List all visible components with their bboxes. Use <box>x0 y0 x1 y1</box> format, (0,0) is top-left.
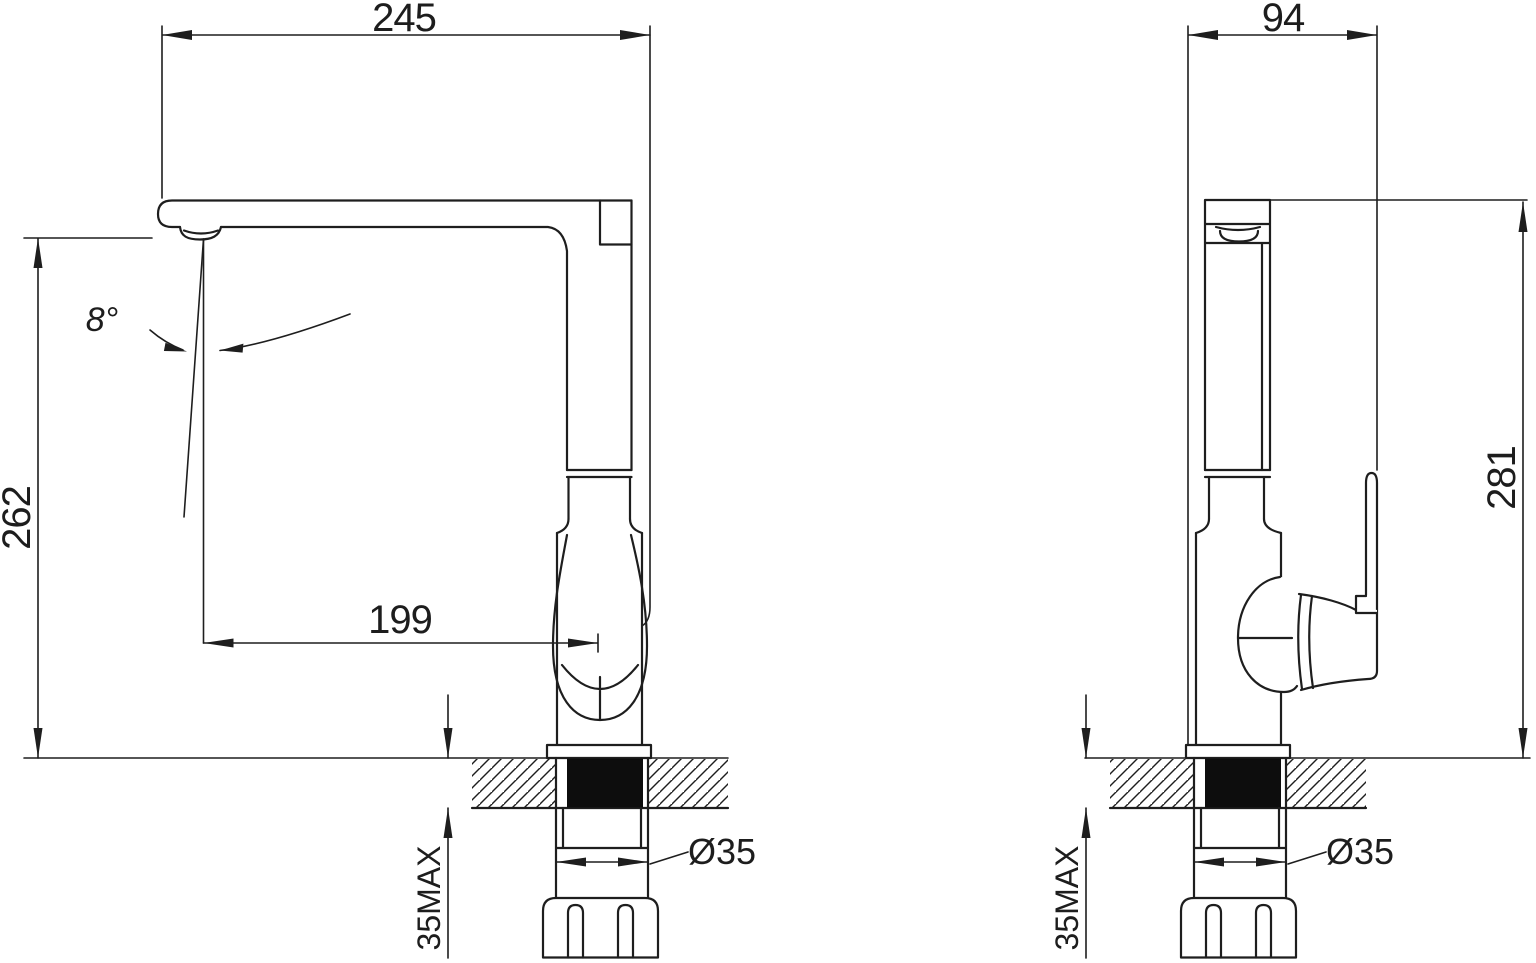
body-step-lines-side <box>1205 470 1270 519</box>
body-step-lines <box>567 470 632 519</box>
dim-overall-height-front: 262 <box>0 238 152 758</box>
counter-hatch-left-side <box>1110 759 1194 807</box>
dim-label-spout-width: 245 <box>372 0 436 40</box>
base-flange-side <box>1186 745 1290 758</box>
side-view: 94 281 35MAX Ø35 <box>1049 0 1530 958</box>
dim-spout-width: 245 <box>162 0 650 198</box>
aerator-nub-inner <box>184 231 218 234</box>
dim-label-spout-angle: 8° <box>86 301 119 339</box>
spout-end-step <box>600 201 632 245</box>
counter-hatch-left <box>472 759 556 807</box>
dim-spout-angle: 8° <box>86 239 350 643</box>
dim-label-hole-diameter-side: Ø35 <box>1326 831 1394 872</box>
dim-label-depth: 94 <box>1262 0 1305 40</box>
counter-hatch-right-side <box>1286 759 1366 807</box>
dim-label-hole-diameter-front: Ø35 <box>688 831 756 872</box>
collar-flares <box>557 519 642 533</box>
faucet-technical-drawing: 245 262 199 8° <box>0 0 1536 963</box>
mounting-nut-side <box>1181 898 1296 958</box>
dim-spout-reach: 199 <box>204 598 599 652</box>
aerator-side <box>1216 227 1260 242</box>
dim-label-deck-thickness-side: 35MAX <box>1049 846 1085 951</box>
dim-label-deck-thickness-front: 35MAX <box>411 846 447 951</box>
faucet-technical-drawing-page: 245 262 199 8° <box>0 0 1536 963</box>
handle-edge-front <box>642 26 650 626</box>
dim-deck-thickness-front: 35MAX <box>411 695 453 958</box>
counter-hatch-right <box>648 759 728 807</box>
dim-hole-diameter-side: Ø35 <box>1194 831 1394 872</box>
mounting-nut-front <box>543 898 658 958</box>
handle-lever-fill <box>1366 473 1377 613</box>
spout-outline <box>158 201 632 228</box>
mounting-hole-side <box>1205 759 1281 808</box>
front-view: 245 262 199 8° <box>0 0 756 958</box>
dim-label-height-front: 262 <box>0 486 39 550</box>
dim-label-height-side: 281 <box>1480 446 1524 510</box>
dim-hole-diameter-front: Ø35 <box>556 831 756 872</box>
collar-flares-side <box>1196 519 1281 533</box>
dim-label-spout-reach: 199 <box>368 598 432 642</box>
spout-underside <box>221 227 567 470</box>
base-flange-front <box>547 745 651 758</box>
mounting-hole-front <box>567 759 643 808</box>
dim-deck-thickness-side: 35MAX <box>1049 695 1091 958</box>
